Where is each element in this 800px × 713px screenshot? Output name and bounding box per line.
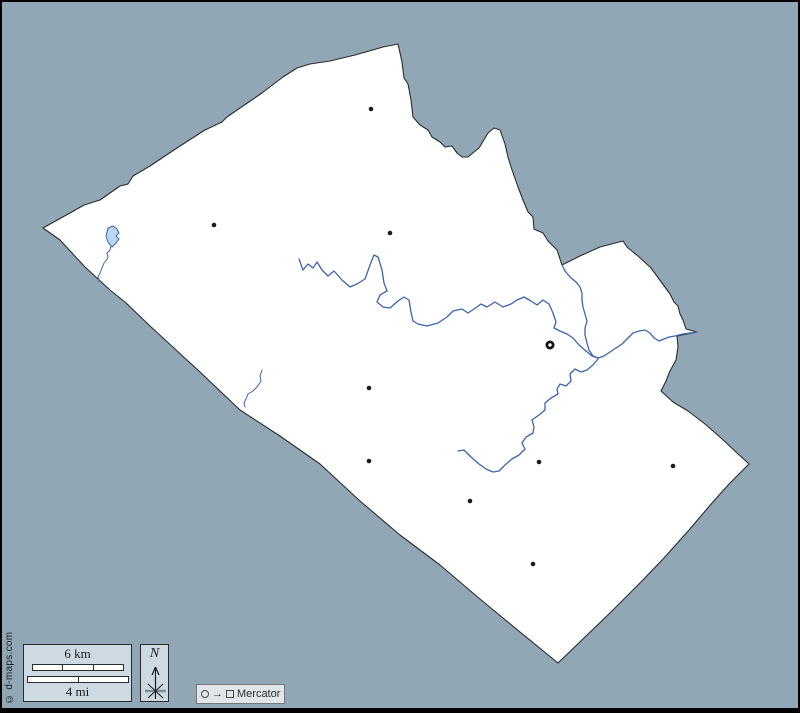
north-arrow-icon (141, 661, 170, 703)
town-dot (531, 562, 536, 567)
county-seat-marker (547, 342, 553, 348)
town-dot (367, 459, 372, 464)
town-dot (212, 223, 217, 228)
scale-km-bar (32, 664, 124, 671)
county-outline (43, 44, 749, 663)
globe-circle-icon (201, 690, 209, 698)
scale-bar-box: 6 km 4 mi (23, 644, 132, 702)
town-dot (367, 386, 372, 391)
compass-north-label: N (141, 646, 168, 662)
scale-mi-label: 4 mi (24, 685, 131, 699)
projected-square-icon (226, 690, 234, 698)
projection-label: Mercator (237, 688, 280, 700)
county-map (0, 0, 800, 713)
compass-box: N (140, 644, 169, 702)
town-dot (468, 499, 473, 504)
projection-box: → Mercator (196, 684, 285, 704)
town-dot (537, 460, 542, 465)
map-canvas: 6 km 4 mi N → Mercator © d-maps.com (0, 0, 800, 713)
town-dot (671, 464, 676, 469)
town-dot (388, 231, 393, 236)
town-dot (369, 107, 374, 112)
scale-mi-bar (27, 676, 129, 683)
projection-arrow-icon: → (212, 689, 223, 700)
copyright-notice: © d-maps.com (4, 628, 18, 708)
scale-km-label: 6 km (24, 647, 131, 661)
